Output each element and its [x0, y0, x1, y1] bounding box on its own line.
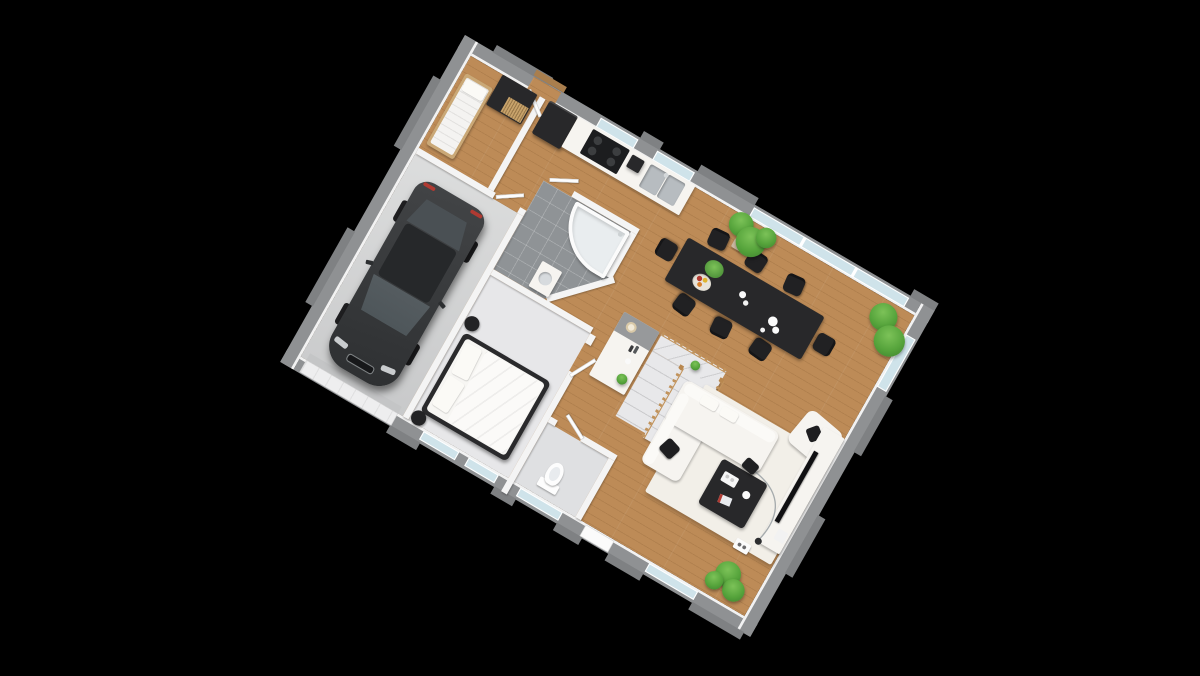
scene-canvas [0, 0, 1200, 676]
plants [280, 35, 935, 637]
floor-plan [280, 35, 935, 637]
stairs-decor-plant [689, 359, 702, 372]
